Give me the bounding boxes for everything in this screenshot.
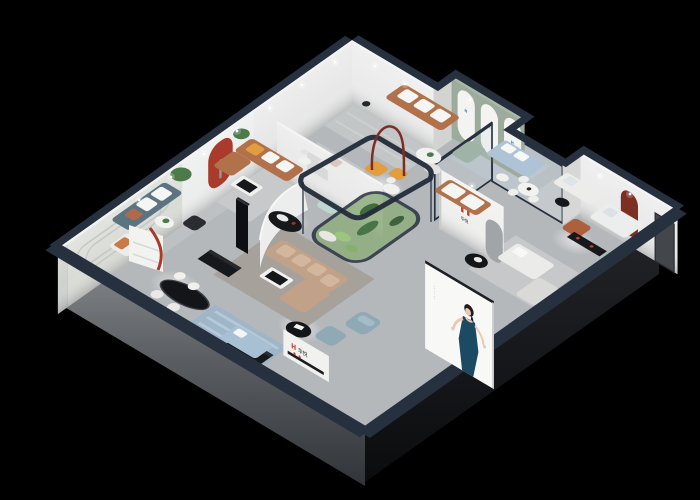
render-stage: · · · · · · · · · · H H H <box>0 0 700 500</box>
tv-panel <box>236 199 248 254</box>
poster-side-edge <box>492 302 494 389</box>
poster-side-text: · · · · · · <box>432 284 436 300</box>
showroom-render: · · · · · · · · · · H H H <box>0 0 700 500</box>
logo-wall-edge <box>439 168 441 229</box>
